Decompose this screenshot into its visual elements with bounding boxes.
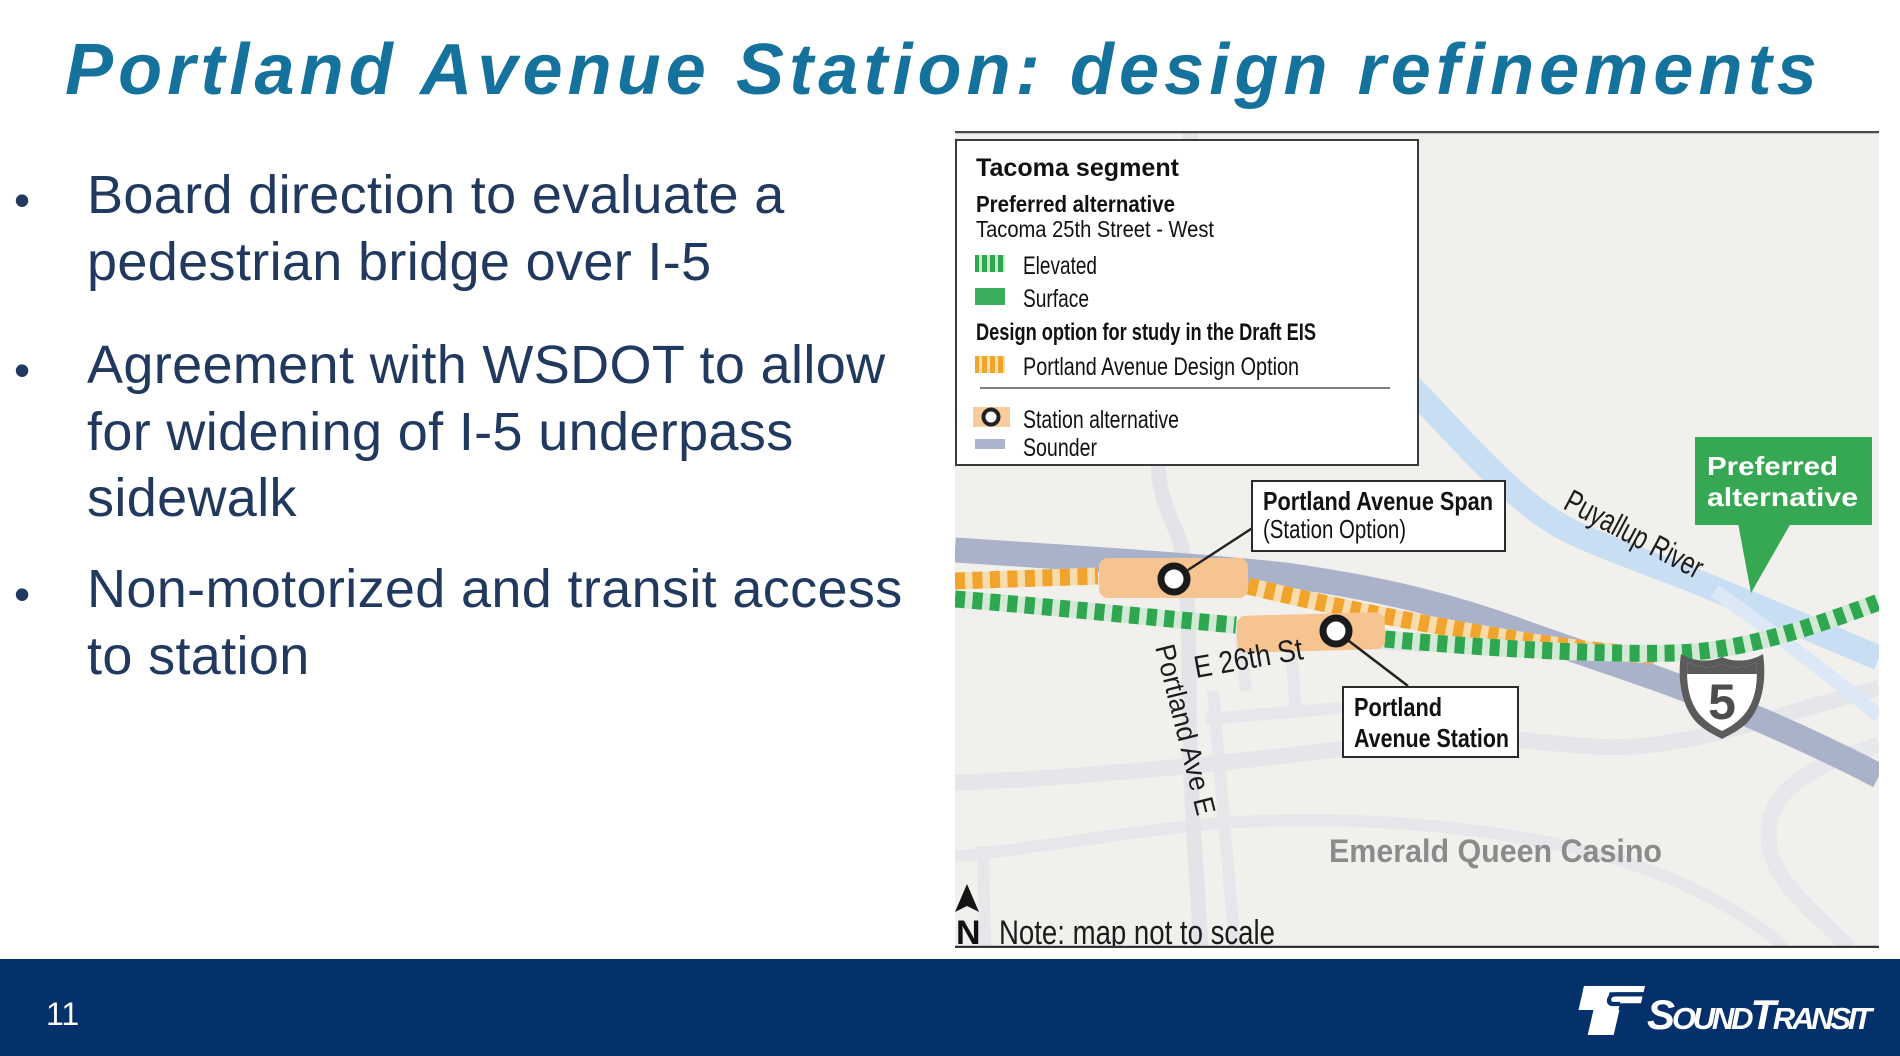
svg-text:Preferred: Preferred <box>1707 451 1838 481</box>
svg-text:5: 5 <box>1708 674 1736 730</box>
svg-text:Tacoma segment: Tacoma segment <box>976 154 1180 182</box>
svg-text:Tacoma 25th Street - West: Tacoma 25th Street - West <box>976 216 1215 242</box>
svg-text:Avenue Station: Avenue Station <box>1354 723 1509 753</box>
svg-text:Sounder: Sounder <box>1023 434 1097 462</box>
svg-text:Design option for study in the: Design option for study in the Draft EIS <box>976 319 1316 346</box>
svg-text:Portland: Portland <box>1354 692 1442 722</box>
svg-text:Station alternative: Station alternative <box>1023 406 1179 434</box>
svg-text:Preferred alternative: Preferred alternative <box>976 191 1175 217</box>
svg-text:N: N <box>956 914 981 948</box>
svg-text:Portland Avenue Design Option: Portland Avenue Design Option <box>1023 353 1299 381</box>
svg-text:Emerald Queen Casino: Emerald Queen Casino <box>1329 833 1662 869</box>
svg-text:Elevated: Elevated <box>1023 252 1097 280</box>
svg-text:(Station Option): (Station Option) <box>1263 514 1406 544</box>
svg-text:alternative: alternative <box>1707 482 1858 512</box>
svg-text:Surface: Surface <box>1023 285 1089 313</box>
svg-text:Note: map not to scale: Note: map not to scale <box>999 914 1275 948</box>
svg-text:Portland Avenue Span: Portland Avenue Span <box>1263 486 1493 516</box>
